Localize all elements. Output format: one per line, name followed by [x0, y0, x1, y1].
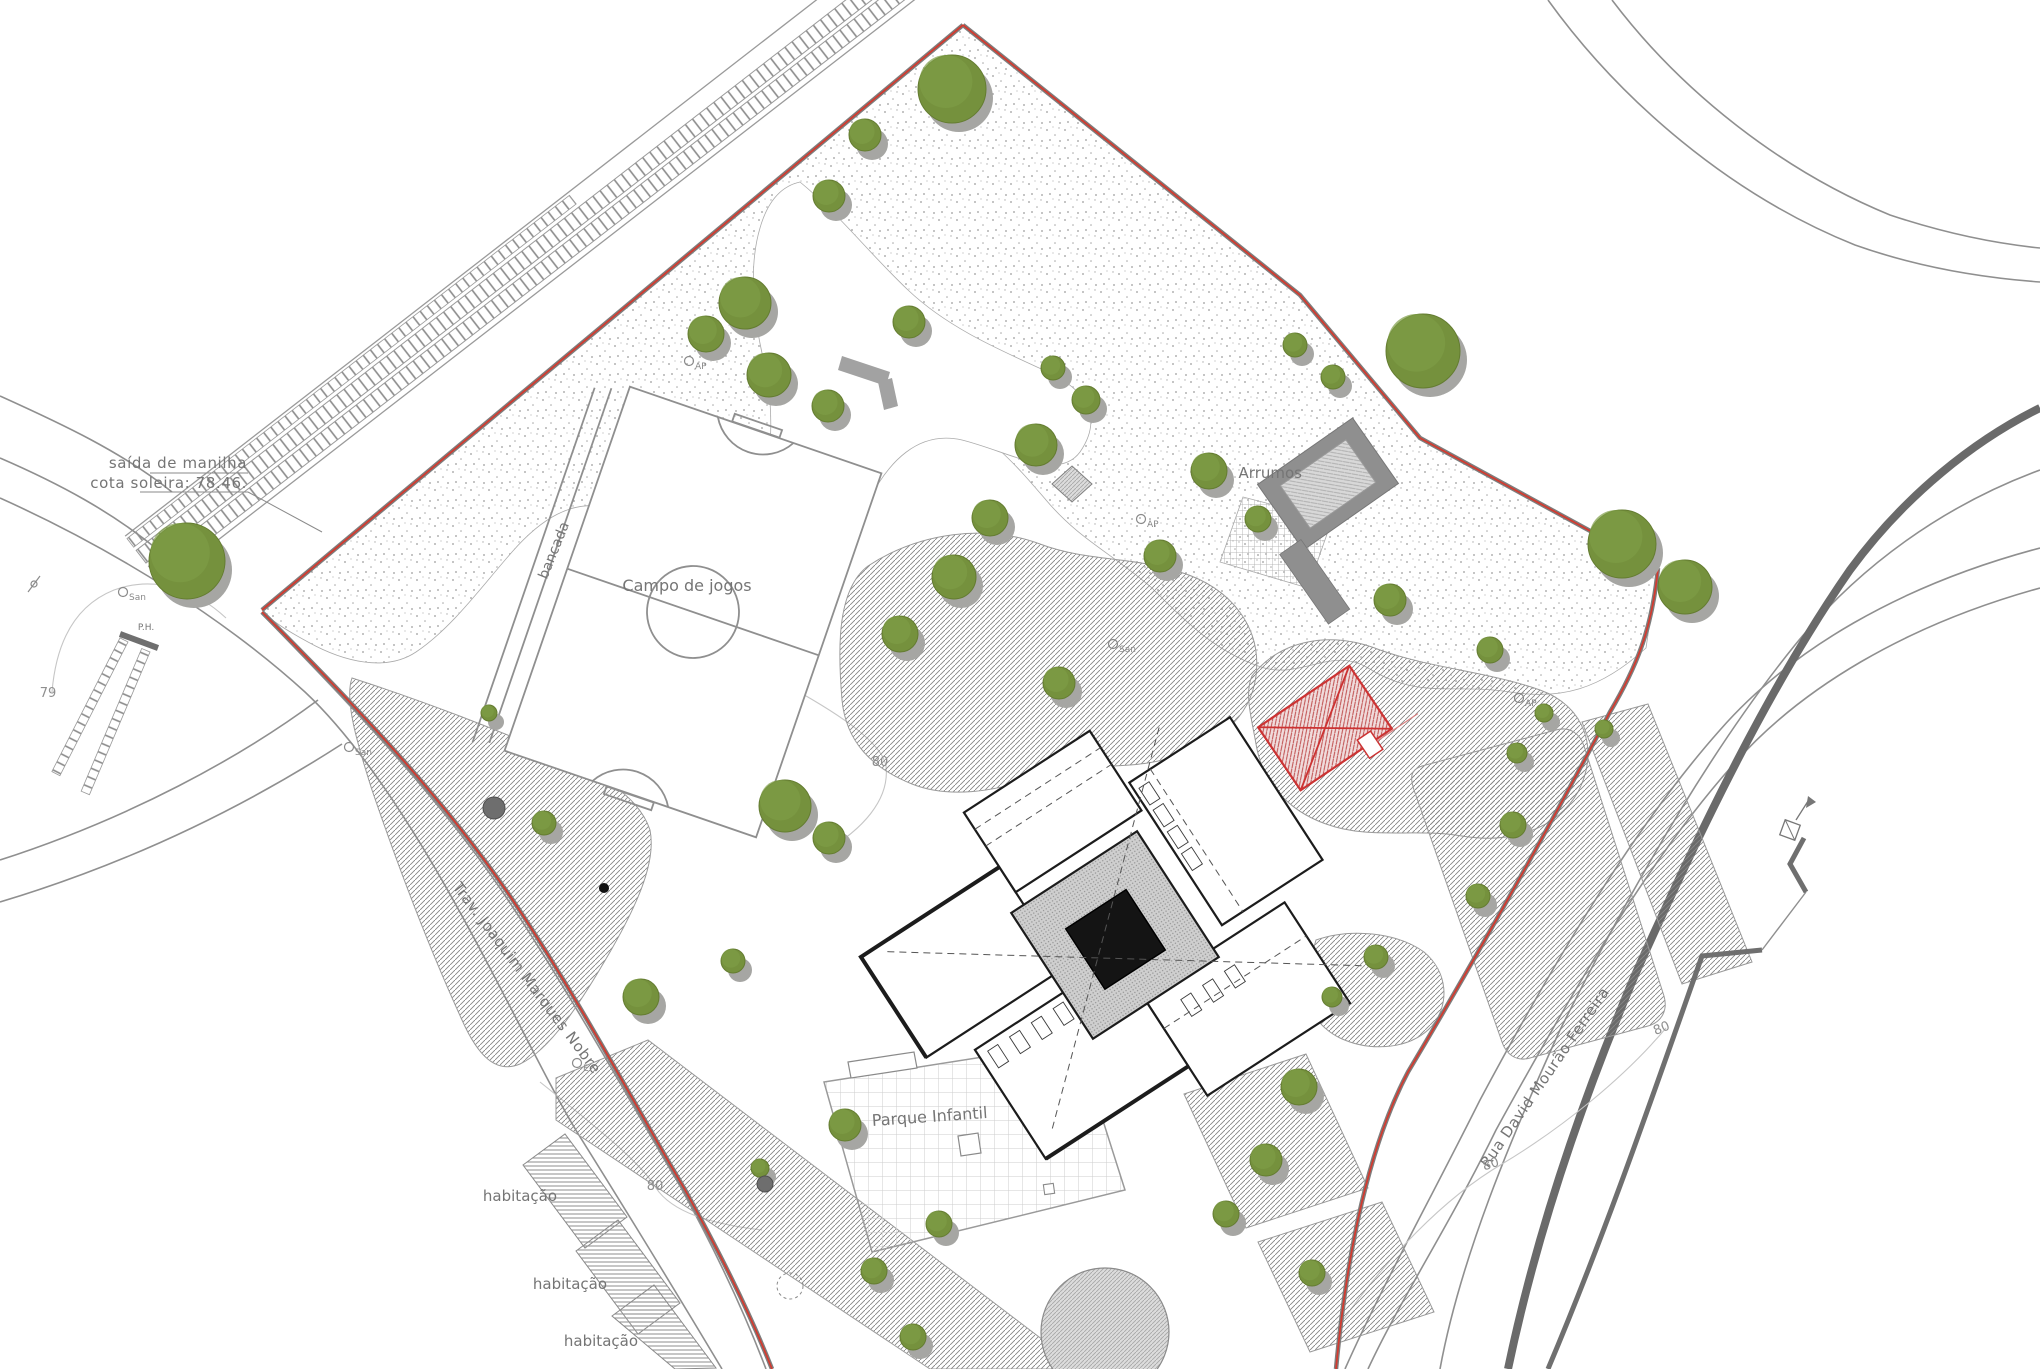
shrub	[757, 1176, 773, 1192]
saida-de-manilha-line1: saída de manilha	[109, 454, 247, 472]
road-topright-1	[1612, 0, 2040, 248]
playground-equipment-1	[958, 1133, 981, 1156]
tree	[149, 523, 232, 608]
tree	[759, 780, 818, 841]
habitacao-label-3: habitação	[564, 1332, 638, 1350]
utility-label: San	[129, 593, 146, 603]
site-plan: SanSanSanAPAPAPE saída de manilhacota so…	[0, 0, 2040, 1369]
tree	[813, 822, 852, 863]
tree	[623, 979, 666, 1024]
saida-de-manilha-line2: cota soleira: 78.46.	[90, 474, 247, 492]
habitacao-label-2: habitação	[533, 1275, 607, 1293]
contour-label: 80	[647, 1179, 664, 1194]
site-plan-canvas: SanSanSanAPAPAPE saída de manilhacota so…	[0, 0, 2040, 1369]
utility-marker-san: San	[119, 588, 146, 604]
ph-label: P.H.	[138, 623, 154, 633]
road-fork-1	[0, 700, 318, 860]
contour-label: 80	[872, 755, 889, 770]
survey-flag	[28, 576, 40, 592]
utility-label: San	[1119, 645, 1136, 655]
arrumos-label: Arrumos	[1239, 464, 1303, 482]
utility-label: AP	[1147, 520, 1159, 530]
tree	[1386, 314, 1467, 397]
playground-equipment-2	[1043, 1183, 1054, 1194]
tree	[1658, 560, 1719, 623]
point-marker	[599, 883, 609, 893]
habitacao-label-1: habitação	[483, 1187, 557, 1205]
road-fork-2	[0, 744, 342, 902]
shrub	[483, 797, 505, 819]
plaza-circle	[1041, 1268, 1169, 1369]
campo-de-jogos-label: Campo de jogos	[622, 576, 751, 595]
utility-label: AP	[695, 362, 707, 372]
utility-label: AP	[1525, 699, 1537, 709]
tree	[721, 949, 752, 982]
ph-ramp	[52, 634, 158, 795]
utility-label: San	[355, 748, 372, 758]
contour-label: 79	[40, 686, 57, 701]
road-topright-2	[1548, 0, 2040, 282]
